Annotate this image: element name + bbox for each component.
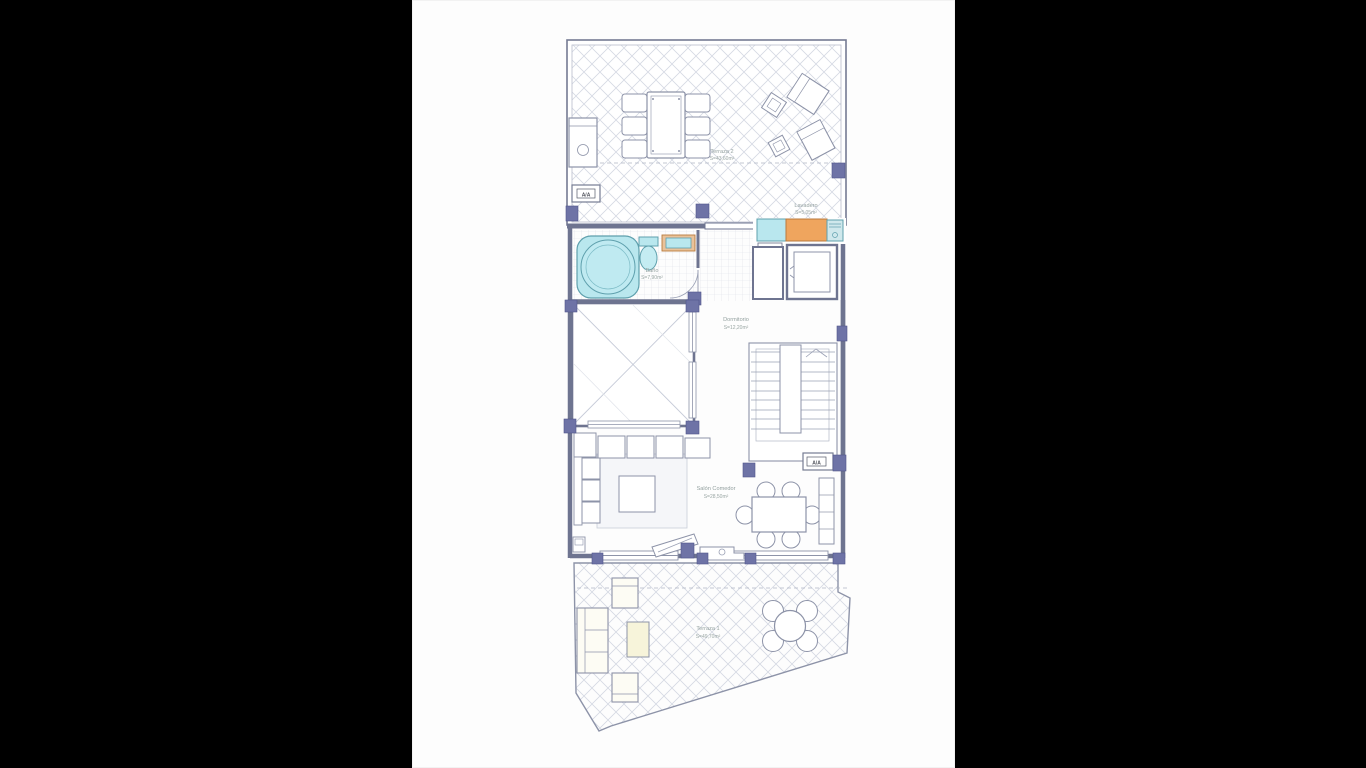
- floor-plan-page: A/A: [412, 0, 955, 768]
- bathroom-sink: [662, 235, 695, 251]
- round-table: [775, 611, 806, 642]
- room-area-terraza2: S=43,60m²: [710, 156, 735, 162]
- room-label-bano: Baño: [645, 268, 658, 274]
- chair: [685, 94, 710, 112]
- closet: [753, 247, 783, 299]
- outdoor-dining-set: [622, 92, 710, 158]
- washing-machine: [827, 220, 843, 241]
- room-label-salon: Salón Comedor: [697, 486, 736, 492]
- chair: [685, 117, 710, 135]
- bathroom: [570, 230, 700, 303]
- column: [686, 300, 699, 312]
- room-label-terraza1: Terraza 1: [696, 626, 719, 632]
- toilet: [639, 237, 658, 270]
- outdoor-sofa: [577, 608, 608, 673]
- column: [743, 463, 755, 477]
- ac-unit-box-2: A/A: [803, 453, 833, 470]
- column: [837, 326, 847, 341]
- stair-core: [780, 345, 801, 433]
- column: [697, 553, 708, 564]
- ac-unit-label: A/A: [582, 193, 591, 199]
- room-label-terraza2: Terraza 2: [710, 149, 733, 155]
- column: [592, 553, 603, 564]
- column: [745, 553, 756, 564]
- room-label-dormitorio: Dormitorio: [723, 317, 749, 323]
- coffee-table: [619, 476, 655, 512]
- column: [833, 553, 845, 564]
- dining-set: [736, 482, 821, 548]
- dining-table: [647, 92, 685, 158]
- column: [696, 204, 709, 218]
- corridor-floor: [700, 230, 753, 301]
- chair: [622, 94, 647, 112]
- column: [681, 543, 694, 558]
- column: [566, 206, 578, 221]
- sofa-back: [574, 457, 582, 525]
- sideboard: [819, 478, 834, 544]
- floor-plan-drawing: A/A: [412, 0, 955, 768]
- elevator: [753, 245, 837, 299]
- terrace-door: [705, 223, 755, 229]
- armchair: [612, 673, 638, 702]
- armchair: [612, 578, 638, 608]
- terrace-cabinet: [569, 118, 597, 167]
- jacuzzi-tub: [577, 236, 639, 298]
- column: [686, 421, 699, 434]
- central-room: [572, 303, 696, 428]
- laundry-counter: [786, 219, 827, 241]
- column: [565, 300, 577, 312]
- room-area-bano: S=7,90m²: [641, 275, 663, 281]
- ac-unit-label: A/A: [812, 461, 821, 467]
- column: [833, 455, 846, 471]
- room-label-lavadero: Lavadero: [794, 203, 817, 209]
- column: [564, 419, 576, 433]
- terrace-1: [574, 563, 850, 731]
- room-area-dormitorio: S=12,20m²: [724, 325, 749, 331]
- laundry-sink: [757, 219, 786, 241]
- room-area-salon: S=28,50m²: [704, 494, 729, 500]
- wall-fixture: [573, 537, 585, 552]
- chair: [622, 117, 647, 135]
- column: [832, 163, 845, 178]
- dining-table: [752, 497, 806, 532]
- room-area-terraza1: S=49,70m²: [696, 634, 721, 640]
- chair: [622, 140, 647, 158]
- chair: [685, 140, 710, 158]
- terrace-2: A/A: [567, 27, 955, 225]
- room-area-lavadero: S=5,05m²: [795, 210, 817, 216]
- staircase: [749, 343, 837, 461]
- ac-unit-box: A/A: [572, 185, 600, 202]
- outdoor-coffee-table: [627, 622, 649, 657]
